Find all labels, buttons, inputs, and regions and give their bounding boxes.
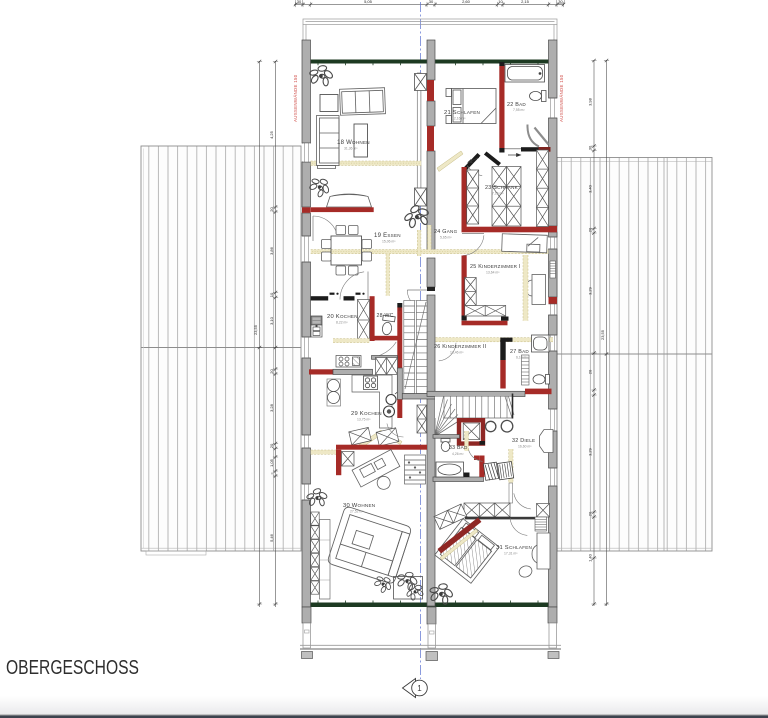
svg-text:30: 30: [297, 0, 302, 4]
svg-text:31,36 m²: 31,36 m²: [344, 147, 358, 151]
svg-text:30: 30: [558, 0, 563, 4]
svg-text:3,86: 3,86: [269, 246, 274, 255]
svg-text:1: 1: [417, 684, 422, 693]
svg-text:20: 20: [588, 511, 593, 516]
svg-text:2,60: 2,60: [462, 0, 471, 4]
svg-text:16,60 m²: 16,60 m²: [518, 445, 532, 449]
svg-text:7,16 m²: 7,16 m²: [492, 192, 504, 196]
svg-text:13,64 m²: 13,64 m²: [486, 271, 500, 275]
svg-text:2,15: 2,15: [521, 0, 530, 4]
svg-text:3,98: 3,98: [588, 97, 593, 106]
svg-text:AUSSENWÄNDE 150: AUSSENWÄNDE 150: [293, 74, 298, 122]
svg-text:3,40: 3,40: [588, 184, 593, 193]
svg-text:OBERGESCHOSS: OBERGESCHOSS: [6, 657, 139, 679]
svg-text:5,05: 5,05: [364, 0, 373, 4]
svg-text:23,55: 23,55: [600, 329, 605, 340]
svg-text:8,22 m²: 8,22 m²: [336, 321, 348, 325]
svg-text:20: 20: [588, 227, 593, 232]
svg-text:20: 20: [588, 369, 593, 374]
svg-text:3,10: 3,10: [269, 316, 274, 325]
svg-text:30: 30: [588, 145, 593, 150]
svg-text:3,28: 3,28: [269, 403, 274, 412]
svg-text:15,06 m²: 15,06 m²: [382, 240, 396, 244]
svg-text:30: 30: [429, 0, 434, 4]
svg-text:10: 10: [498, 0, 503, 4]
svg-text:3,29: 3,29: [588, 447, 593, 456]
svg-text:4,25: 4,25: [269, 130, 274, 139]
svg-text:27,52 m²: 27,52 m²: [350, 510, 364, 514]
svg-text:6,10 m²: 6,10 m²: [516, 356, 528, 360]
svg-text:10: 10: [269, 292, 274, 297]
svg-text:17,31 m²: 17,31 m²: [504, 552, 518, 556]
svg-text:3,29: 3,29: [588, 286, 593, 295]
svg-text:20: 20: [269, 443, 274, 448]
svg-text:13,46 m²: 13,46 m²: [450, 351, 464, 355]
svg-text:20: 20: [269, 207, 274, 212]
svg-text:12,16 m²: 12,16 m²: [452, 117, 466, 121]
svg-text:28 WC: 28 WC: [377, 313, 394, 319]
svg-text:1,05: 1,05: [269, 458, 274, 467]
svg-text:5,46: 5,46: [269, 533, 274, 542]
svg-text:23,55: 23,55: [253, 324, 258, 335]
svg-text:5,65 m²: 5,65 m²: [440, 236, 452, 240]
svg-text:4,26 m²: 4,26 m²: [452, 452, 464, 456]
svg-text:7,55 m²: 7,55 m²: [513, 108, 525, 112]
svg-text:20: 20: [269, 369, 274, 374]
svg-text:13,75 m²: 13,75 m²: [357, 418, 371, 422]
svg-text:1,40: 1,40: [588, 553, 593, 562]
svg-text:AUSSENWÄNDE 150: AUSSENWÄNDE 150: [559, 74, 564, 122]
